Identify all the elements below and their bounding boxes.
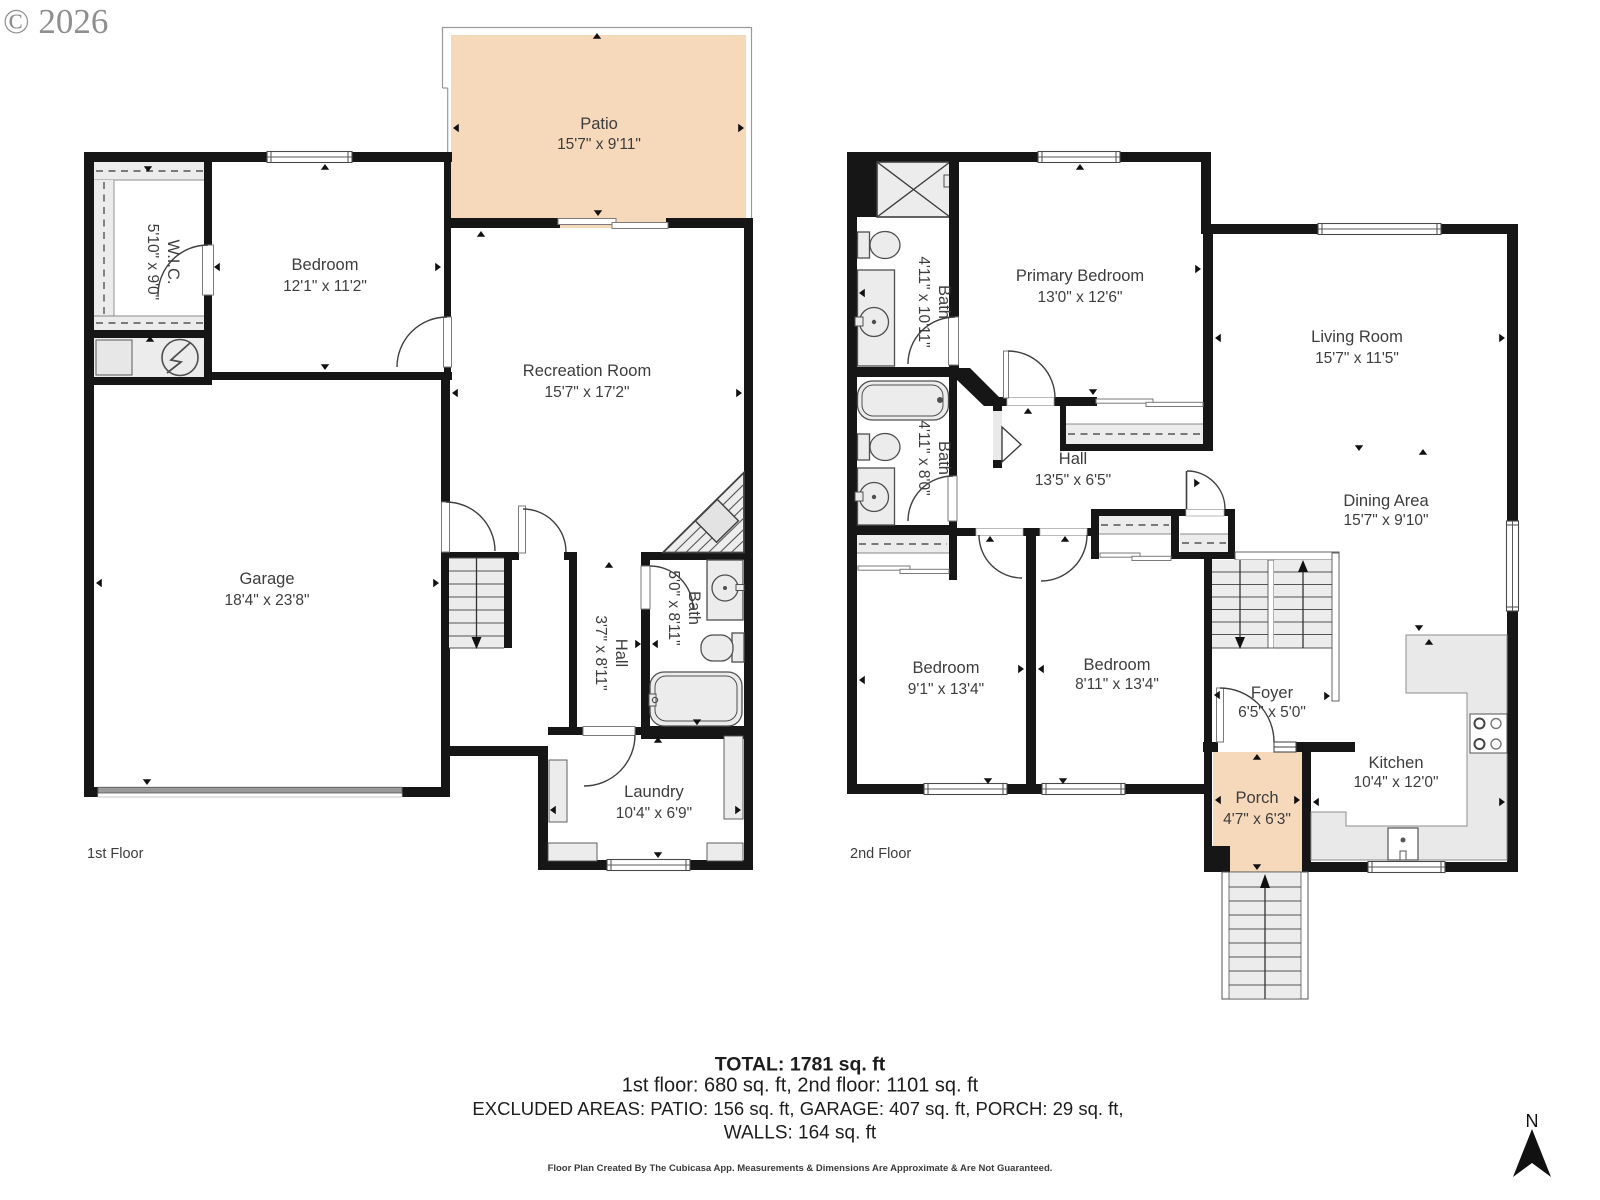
svg-text:Recreation Room: Recreation Room [523, 362, 651, 380]
svg-text:15'7" x 17'2": 15'7" x 17'2" [544, 384, 629, 401]
svg-text:Bath: Bath [935, 285, 953, 319]
svg-text:Kitchen: Kitchen [1368, 754, 1423, 772]
svg-text:5'0" x 8'11": 5'0" x 8'11" [665, 570, 682, 645]
svg-text:W.I.C.: W.I.C. [164, 240, 182, 285]
svg-text:15'7" x 9'11": 15'7" x 9'11" [557, 136, 641, 153]
svg-text:Bedroom: Bedroom [292, 256, 359, 274]
svg-text:Dining Area: Dining Area [1343, 492, 1429, 510]
svg-text:1st Floor: 1st Floor [87, 846, 144, 862]
svg-text:4'11" x 8'0": 4'11" x 8'0" [915, 420, 932, 495]
svg-text:Floor Plan Created By The Cubi: Floor Plan Created By The Cubicasa App. … [548, 1163, 1053, 1174]
svg-text:1st floor: 680 sq. ft, 2nd flo: 1st floor: 680 sq. ft, 2nd floor: 1101 s… [622, 1075, 979, 1097]
svg-text:8'11" x 13'4": 8'11" x 13'4" [1075, 676, 1159, 693]
svg-text:© 2026: © 2026 [3, 2, 108, 41]
svg-text:Laundry: Laundry [624, 783, 684, 801]
svg-text:EXCLUDED AREAS: PATIO: 156 sq.: EXCLUDED AREAS: PATIO: 156 sq. ft, GARAG… [472, 1098, 1123, 1119]
svg-text:Patio: Patio [580, 115, 618, 133]
svg-text:13'0" x 12'6": 13'0" x 12'6" [1037, 289, 1122, 306]
svg-text:6'5" x 5'0": 6'5" x 5'0" [1238, 704, 1306, 721]
svg-text:10'4" x 12'0": 10'4" x 12'0" [1353, 774, 1438, 791]
svg-text:Foyer: Foyer [1251, 684, 1294, 702]
svg-text:WALLS: 164 sq. ft: WALLS: 164 sq. ft [724, 1123, 877, 1144]
svg-text:Primary Bedroom: Primary Bedroom [1016, 267, 1144, 285]
svg-text:TOTAL: 1781 sq. ft: TOTAL: 1781 sq. ft [715, 1054, 886, 1076]
svg-text:18'4" x 23'8": 18'4" x 23'8" [224, 592, 309, 609]
svg-text:13'5" x 6'5": 13'5" x 6'5" [1035, 472, 1111, 489]
svg-text:15'7" x 9'10": 15'7" x 9'10" [1343, 512, 1428, 529]
svg-text:9'1" x 13'4": 9'1" x 13'4" [908, 681, 984, 698]
svg-text:Hall: Hall [1059, 450, 1087, 468]
svg-text:Hall: Hall [612, 639, 630, 667]
svg-text:Bedroom: Bedroom [1084, 656, 1151, 674]
svg-text:10'4" x 6'9": 10'4" x 6'9" [616, 805, 692, 822]
svg-text:3'7" x 8'11": 3'7" x 8'11" [592, 615, 609, 690]
svg-text:15'7" x 11'5": 15'7" x 11'5" [1315, 350, 1399, 367]
svg-text:4'11" x 10'11": 4'11" x 10'11" [915, 256, 932, 347]
svg-text:Bath: Bath [685, 591, 703, 625]
svg-text:Living Room: Living Room [1311, 328, 1403, 346]
svg-text:N: N [1526, 1111, 1539, 1131]
svg-text:Porch: Porch [1235, 789, 1278, 807]
svg-text:Bath: Bath [935, 441, 953, 475]
svg-text:Bedroom: Bedroom [913, 659, 980, 677]
svg-text:Garage: Garage [239, 570, 294, 588]
svg-text:2nd Floor: 2nd Floor [850, 846, 911, 862]
svg-text:12'1" x 11'2": 12'1" x 11'2" [283, 278, 367, 295]
svg-text:4'7" x 6'3": 4'7" x 6'3" [1223, 811, 1291, 828]
